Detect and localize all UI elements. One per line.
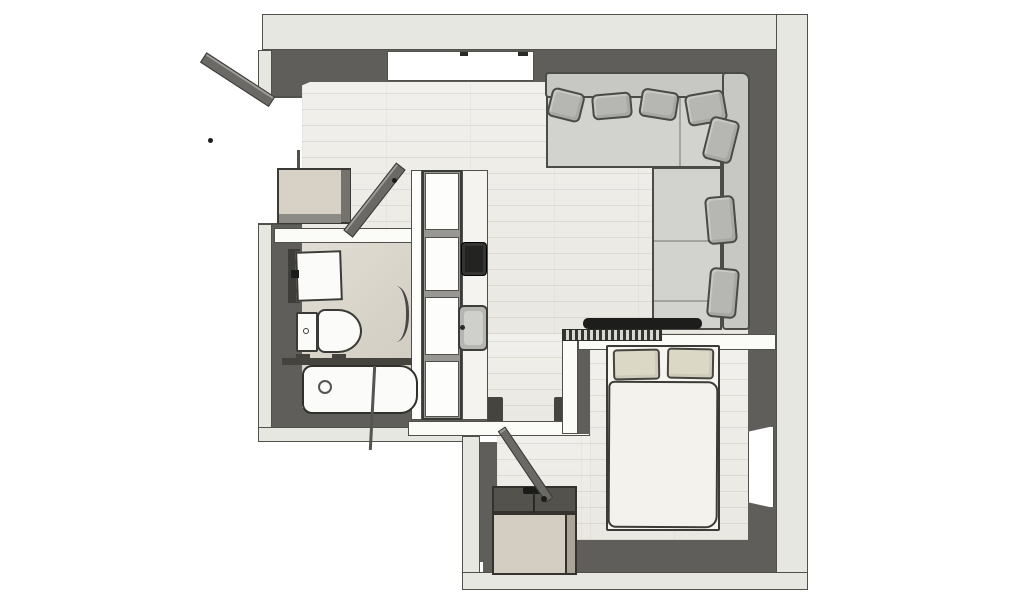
top-wall	[262, 14, 808, 50]
sofa-pillow-3	[638, 87, 680, 122]
kitchen-faucet	[460, 325, 465, 330]
bedroom-door-handle	[541, 496, 547, 502]
wardrobe-chest-side	[567, 513, 577, 575]
vanity-handle	[291, 270, 299, 278]
kitchen-shelf-compartment-2	[425, 237, 459, 291]
tv-console	[583, 318, 702, 329]
kitchen-counter	[462, 170, 488, 420]
bath-shelf-bracket-2	[332, 354, 346, 358]
bed-pillow-left	[613, 349, 661, 381]
sofa-pillow-2	[591, 91, 633, 120]
floor-plan	[0, 0, 1024, 600]
bath-shelf	[282, 358, 412, 365]
kitchen-sink-basin	[464, 311, 483, 345]
top-window-latch	[460, 52, 468, 56]
cooktop	[461, 242, 487, 276]
entry-cabinet-side	[341, 170, 350, 222]
vanity-mirror-sink	[295, 250, 343, 302]
lower-left-wall	[462, 436, 480, 590]
bedroom-side-window	[748, 426, 774, 508]
kitchen-shelf-compartment-4	[425, 361, 459, 417]
sofa-seam	[679, 98, 681, 166]
bed-pillow-right	[667, 348, 715, 380]
entry-cabinet-front-edge	[279, 214, 341, 223]
bed-duvet	[608, 381, 719, 529]
wardrobe-chest-seam	[533, 493, 535, 513]
front-door-handle	[208, 138, 213, 143]
top-window-latch-2	[518, 52, 528, 56]
sofa-pillow-6	[704, 195, 738, 245]
bath-shelf-bracket	[296, 354, 310, 358]
kitchen-shelf-compartment-3	[425, 297, 459, 355]
toilet-flush-button	[303, 328, 309, 334]
right-wall	[776, 14, 808, 590]
bedroom-stub-wall	[562, 334, 578, 434]
sofa-pillow-7	[706, 267, 740, 319]
bedroom-stub-wall-face	[578, 340, 590, 434]
kitchen-shelf-compartment-1	[425, 173, 459, 230]
bedroom-door-jamb-left	[487, 397, 503, 422]
bathtub-drain	[318, 380, 332, 394]
bathroom-door-handle	[392, 178, 397, 183]
radiator-grille	[562, 329, 662, 341]
wardrobe-chest-front	[492, 513, 567, 575]
